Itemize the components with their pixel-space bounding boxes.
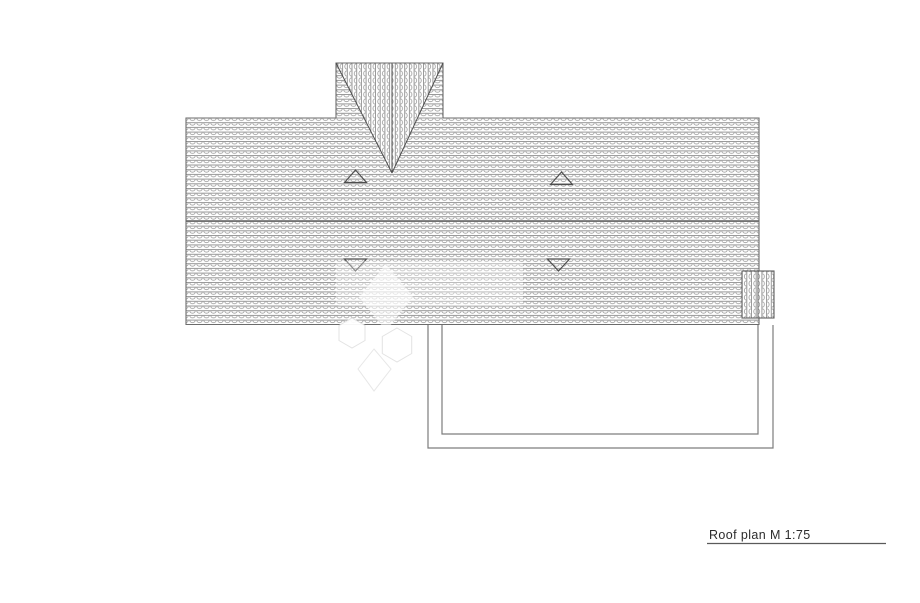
chimney-right-half: [758, 271, 774, 318]
watermark-logo: [336, 261, 523, 391]
drawing-caption: Roof plan M 1:75: [709, 528, 811, 542]
roof-plan-drawing: Roof plan M 1:75: [0, 0, 920, 603]
roof-plan-page: Roof plan M 1:75: [0, 0, 920, 603]
terrace-outline: [428, 325, 773, 448]
chimney: [742, 271, 774, 318]
chimney-left-half: [742, 271, 758, 318]
terrace-outline-outer: [428, 325, 773, 448]
watermark-hexagon-large: [382, 328, 411, 362]
terrace-outline-inner: [442, 325, 758, 434]
